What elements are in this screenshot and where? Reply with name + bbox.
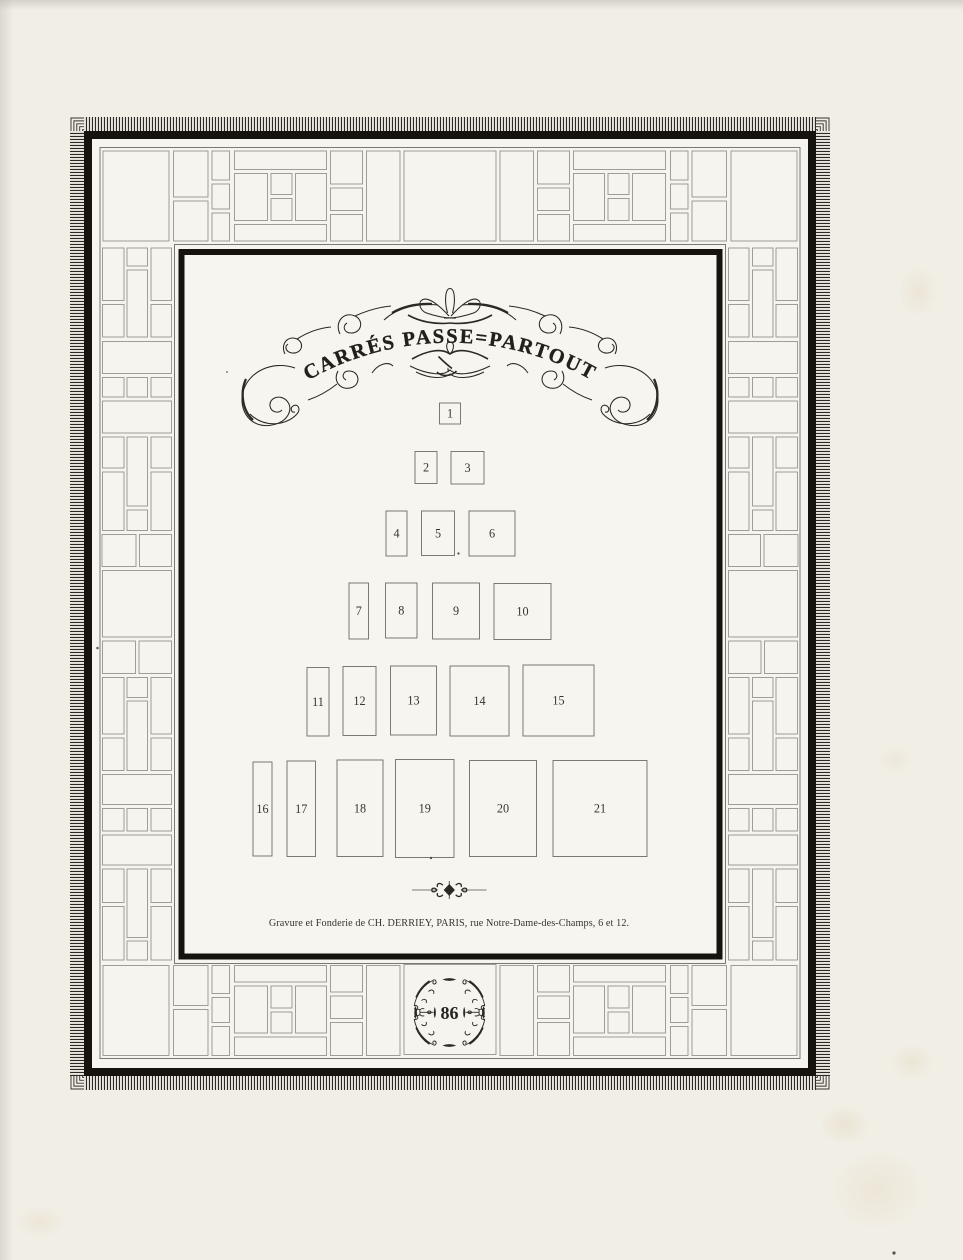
svg-text:15: 15	[552, 694, 564, 708]
svg-text:3: 3	[464, 461, 470, 475]
svg-text:5: 5	[435, 526, 441, 540]
svg-text:12: 12	[353, 694, 365, 708]
svg-text:7: 7	[356, 604, 362, 618]
svg-text:19: 19	[419, 802, 431, 816]
svg-text:21: 21	[594, 802, 606, 816]
svg-text:1: 1	[447, 407, 453, 421]
svg-text:6: 6	[489, 527, 495, 541]
svg-text:Gravure et Fonderie de CH. DER: Gravure et Fonderie de CH. DERRIEY, PARI…	[269, 918, 629, 929]
svg-text:86: 86	[441, 1003, 459, 1023]
svg-text:10: 10	[516, 605, 528, 619]
svg-text:8: 8	[398, 604, 404, 618]
svg-text:9: 9	[453, 604, 459, 618]
svg-text:2: 2	[423, 461, 429, 475]
svg-text:18: 18	[354, 801, 366, 815]
svg-text:16: 16	[256, 802, 268, 816]
svg-text:4: 4	[393, 527, 399, 541]
svg-text:17: 17	[295, 802, 307, 816]
svg-text:11: 11	[312, 695, 324, 709]
svg-text:14: 14	[473, 694, 485, 708]
svg-text:13: 13	[407, 694, 419, 708]
svg-text:20: 20	[497, 802, 509, 816]
